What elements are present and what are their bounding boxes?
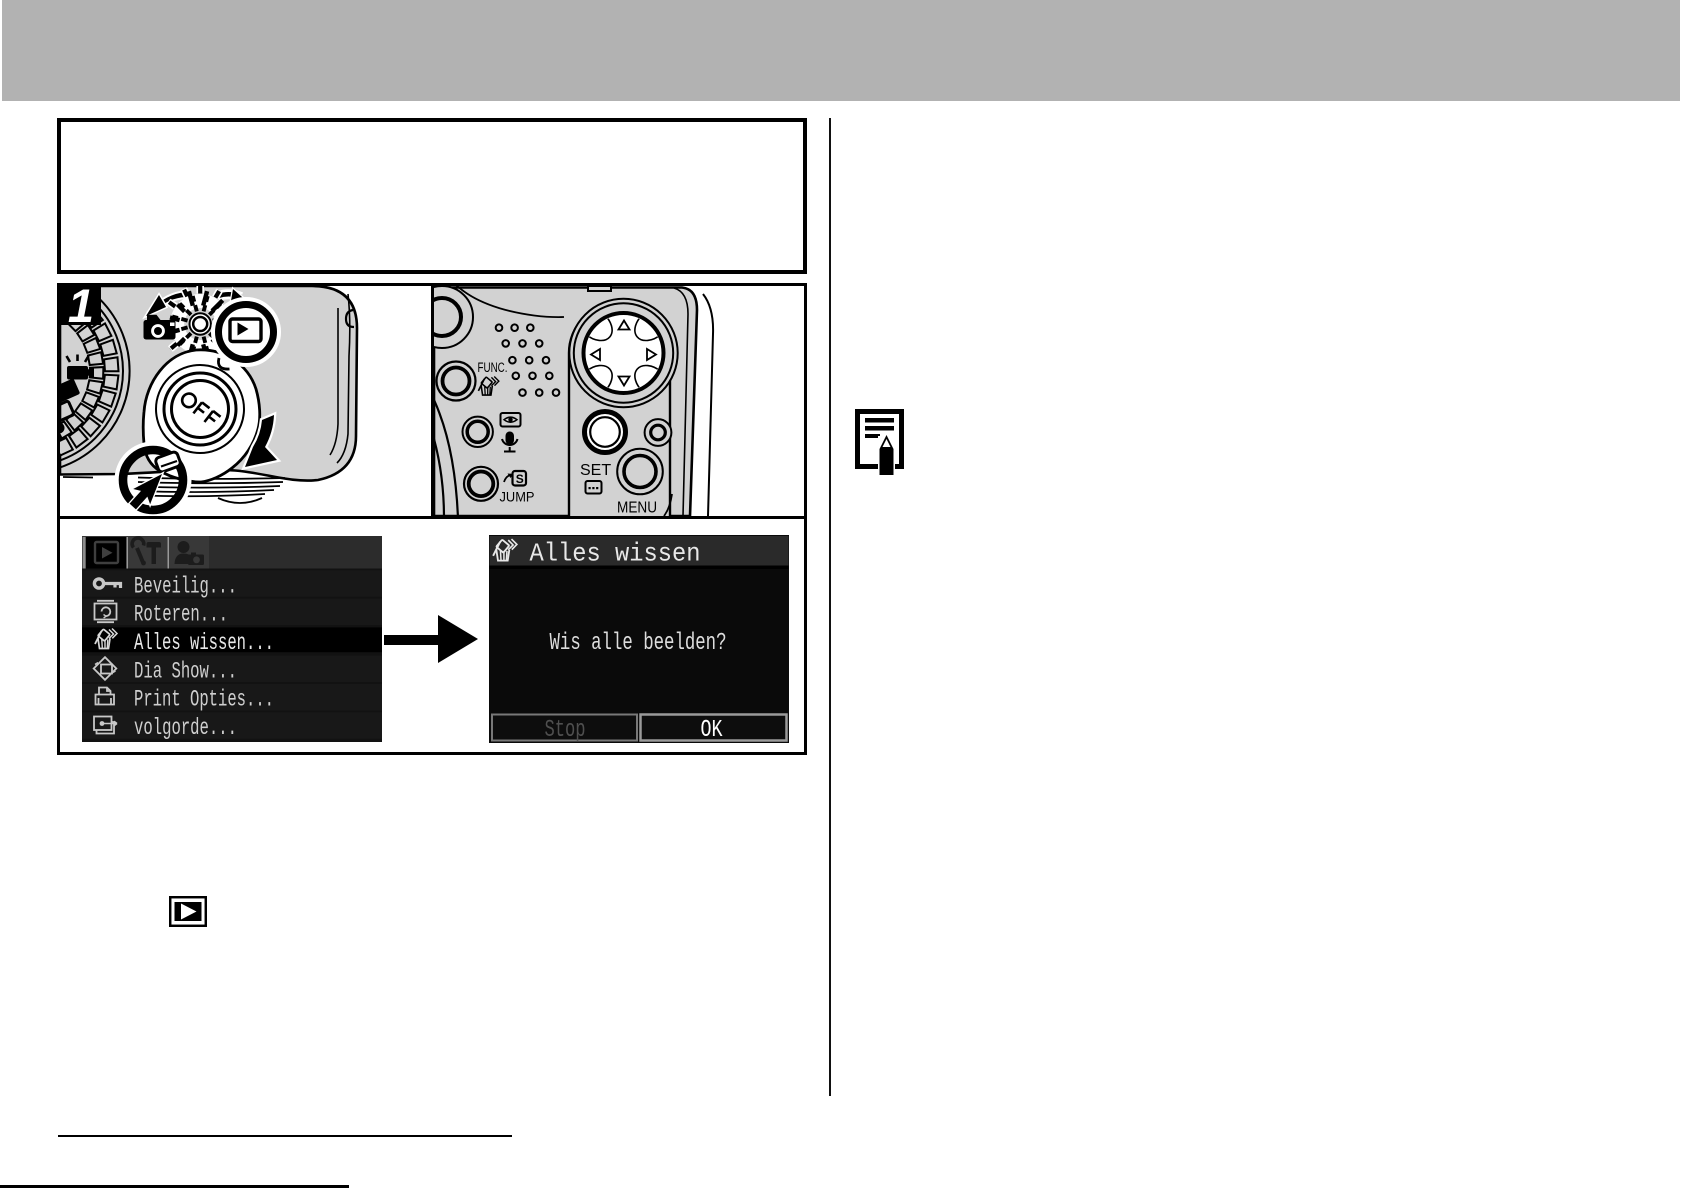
svg-text:Roteren...: Roteren... [134,602,228,629]
svg-text:volgorde...: volgorde... [134,715,237,742]
svg-text:Dia Show...: Dia Show... [134,658,237,685]
svg-text:Alles wissen: Alles wissen [530,539,701,569]
svg-text:FUNC.: FUNC. [478,360,508,375]
svg-text:JUMP: JUMP [500,489,535,505]
svg-text:Print Opties...: Print Opties... [134,687,274,714]
svg-text:Alles wissen...: Alles wissen... [134,630,274,657]
svg-text:S: S [516,472,524,486]
svg-text:OK: OK [701,717,723,743]
svg-text:Wis alle beelden?: Wis alle beelden? [550,630,727,657]
svg-text:Beveilig...: Beveilig... [134,573,237,600]
svg-text:SET: SET [580,462,611,479]
svg-text:Stop: Stop [545,717,586,743]
svg-text:1: 1 [68,286,94,332]
svg-text:MENU: MENU [617,500,657,517]
